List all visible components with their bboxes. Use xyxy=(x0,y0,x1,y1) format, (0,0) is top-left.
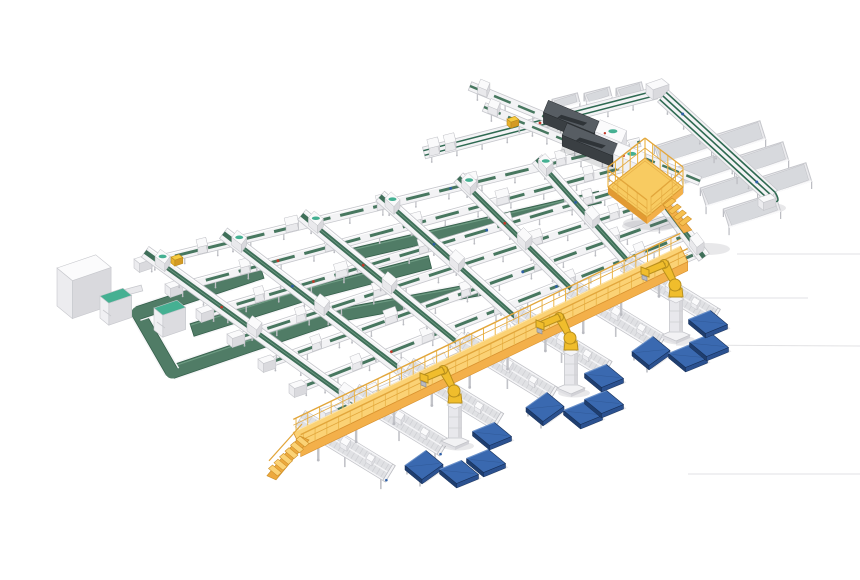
scene-svg xyxy=(0,0,860,580)
factory-render xyxy=(0,0,860,580)
pallet-4 xyxy=(473,423,515,451)
elevated-walkway xyxy=(267,233,688,479)
pallet-tilted-5 xyxy=(526,393,567,429)
outfeed-conveyors xyxy=(295,254,720,489)
